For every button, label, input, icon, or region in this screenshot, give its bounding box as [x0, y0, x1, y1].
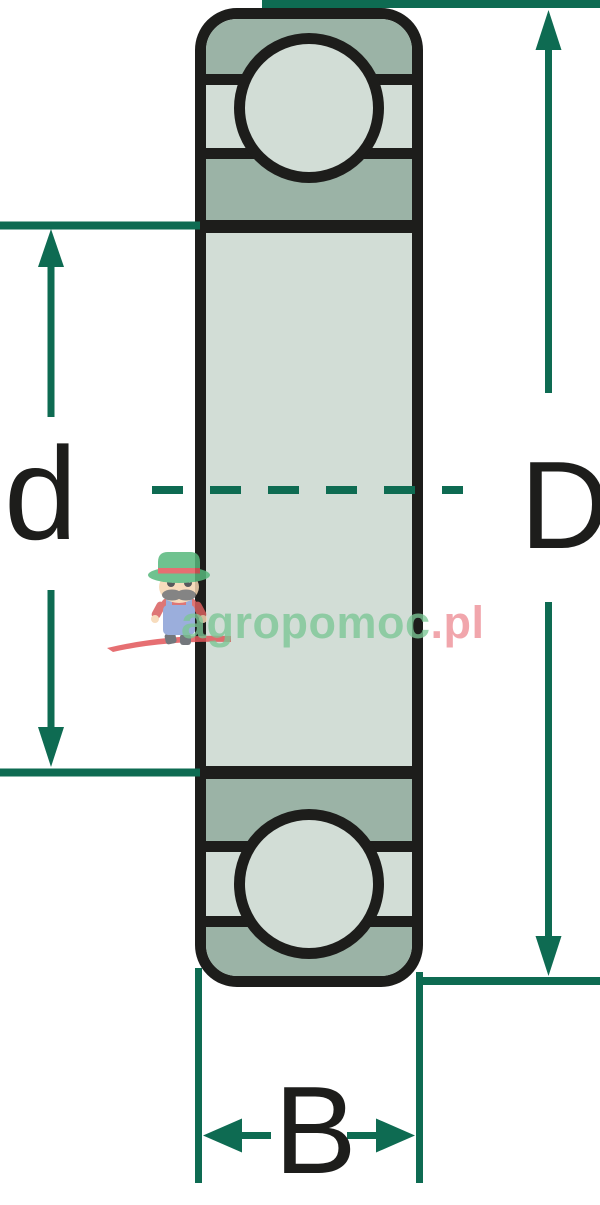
- B-arrow-left-icon: [203, 1119, 242, 1153]
- D-arrow-down-icon: [536, 936, 562, 976]
- mascot-hand-left: [151, 615, 159, 623]
- watermark-brand-text: agropomoc.pl: [181, 597, 485, 649]
- B-arrow-right-icon: [376, 1119, 415, 1153]
- bore-diameter-label: d: [4, 428, 77, 560]
- d-arrow-down-icon: [38, 727, 64, 767]
- width-label: B: [274, 1069, 357, 1193]
- d-arrow-up-icon: [38, 229, 64, 267]
- mascot-hat-band: [158, 568, 200, 574]
- watermark-brand-green: agropomoc: [181, 597, 431, 648]
- outer-diameter-label: D: [520, 444, 600, 568]
- bearing-dimension-diagram: d D B agropomoc.pl: [0, 0, 600, 1205]
- D-arrow-up-icon: [536, 10, 562, 50]
- watermark-brand-red: .pl: [431, 597, 485, 648]
